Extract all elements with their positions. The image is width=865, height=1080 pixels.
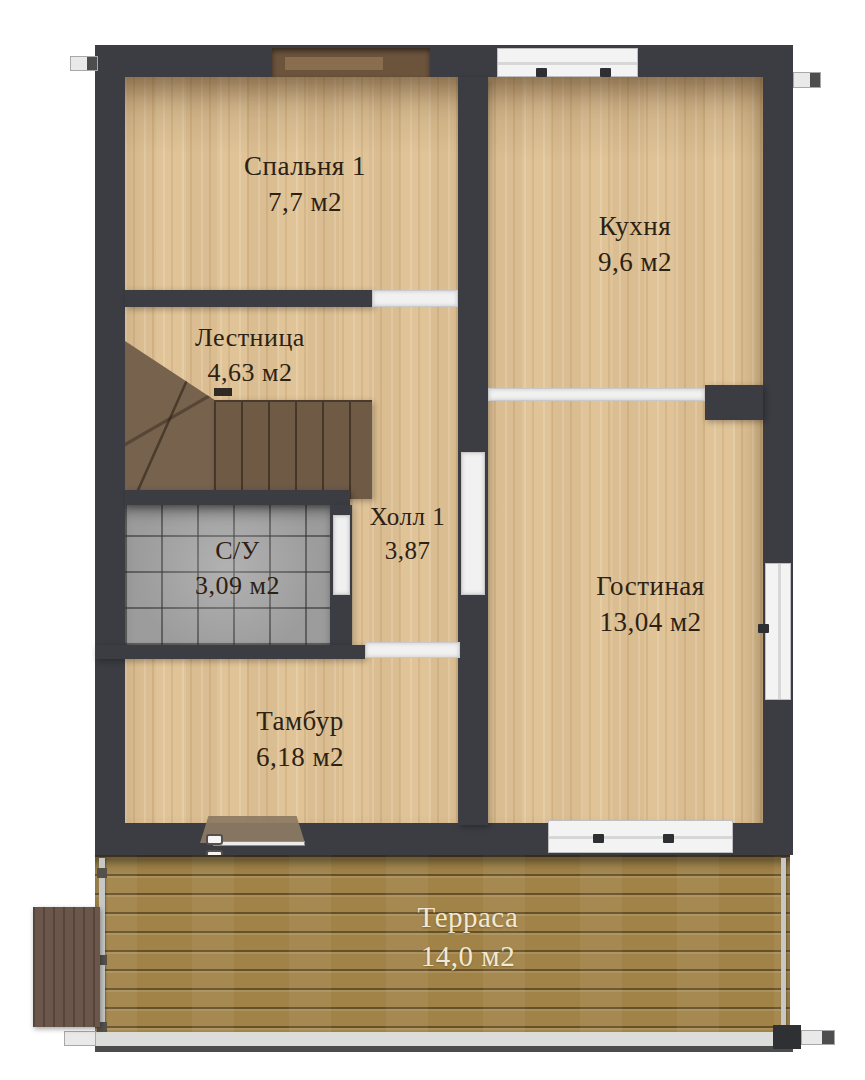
living-terrace-window [548,820,733,853]
room-name: С/У [140,533,335,568]
window-sill [285,57,383,70]
room-area: 14,0 м2 [368,937,568,976]
room-label-bathroom: С/У 3,09 м2 [140,533,335,603]
room-label-living: Гостиная 13,04 м2 [548,568,753,641]
room-label-hall: Холл 1 3,87 [345,500,470,568]
wall-outer-left [95,45,125,855]
room-label-terrace: Терраса 14,0 м2 [368,898,568,976]
wall-bathroom-top [125,490,350,505]
room-name: Терраса [368,898,568,937]
room-area: 13,04 м2 [548,604,753,640]
window-tick [663,834,674,843]
room-area: 6,18 м2 [200,739,400,775]
window-tick [593,834,604,843]
room-area: 7,7 м2 [195,184,415,220]
terrace-stub-left [64,1031,96,1046]
wall-bedroom-divider [125,290,372,307]
staircase-treads [214,400,372,499]
terrace-rail-bottom [95,1046,793,1052]
terrace-fascia [95,1032,793,1046]
pipe-stub-right [793,72,821,88]
entry-door-handle [206,834,223,845]
terrace-stub-right [801,1030,835,1045]
room-area: 3,09 м2 [140,568,335,603]
terrace-corner-post [773,1025,801,1049]
room-label-stairs: Лестница 4,63 м2 [150,320,350,390]
floor-plan: Спальня 1 7,7 м2 Кухня 9,6 м2 Лестница 4… [0,0,865,1080]
entry-door-leaf [213,841,305,846]
room-name: Кухня [540,208,730,244]
terrace-rail-post [97,868,107,878]
room-name: Лестница [150,320,350,355]
room-label-bedroom: Спальня 1 7,7 м2 [195,148,415,221]
room-area: 4,63 м2 [150,355,350,390]
window-tick [536,68,547,77]
wall-outer-top [95,45,793,77]
room-label-vestibule: Тамбур 6,18 м2 [200,703,400,776]
room-name: Спальня 1 [195,148,415,184]
room-area: 3,87 [345,534,470,568]
bedroom-top-window [272,48,430,77]
door-hall-vestibule [365,642,460,658]
door-bedroom [372,290,458,307]
opening-kitchen-living [488,388,705,401]
room-area: 9,6 м2 [540,244,730,280]
window-tick [758,624,769,633]
wall-bathroom-bottom [95,645,365,659]
room-label-kitchen: Кухня 9,6 м2 [540,208,730,281]
kitchen-window [497,48,638,77]
window-tick [600,68,611,77]
pipe-stub-left [70,56,98,71]
wall-outer-right [763,45,793,855]
side-porch-step [33,907,100,1027]
room-name: Холл 1 [345,500,470,534]
wall-central-vertical [458,77,488,825]
room-name: Гостиная [548,568,753,604]
terrace-rail-right [781,858,786,1030]
room-name: Тамбур [200,703,400,739]
wall-kitchen-living-stub [705,385,763,420]
